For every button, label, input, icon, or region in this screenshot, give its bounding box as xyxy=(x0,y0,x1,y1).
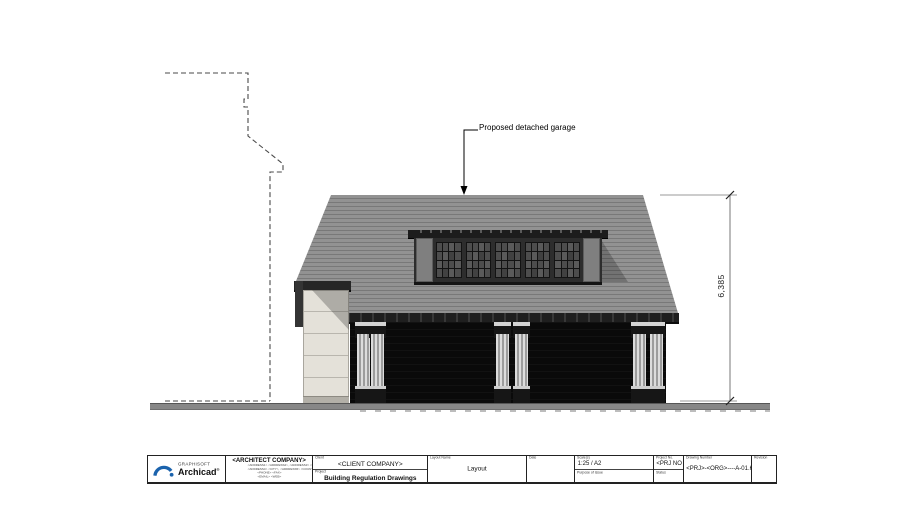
date-cell: Date xyxy=(527,456,575,482)
window-pane xyxy=(467,252,472,260)
window-pane xyxy=(515,243,520,251)
window-pane xyxy=(574,261,579,269)
dormer-window-band xyxy=(414,238,602,285)
dormer-windows xyxy=(436,242,580,278)
left-wall-return xyxy=(295,281,303,327)
window-pane xyxy=(479,243,484,251)
window-pane xyxy=(526,252,531,260)
window-pane xyxy=(467,243,472,251)
client-label: Client xyxy=(315,456,324,459)
window-pane xyxy=(568,269,573,277)
revision-label: Revision xyxy=(754,456,767,459)
dimension-tick-top xyxy=(726,191,734,199)
window-pane xyxy=(485,252,490,260)
window-pane xyxy=(496,252,501,260)
layout-name-cell: Layout Name Layout xyxy=(428,456,527,482)
window-pane xyxy=(526,269,531,277)
leader-arrow-icon xyxy=(461,186,468,195)
window-pane xyxy=(532,252,537,260)
window-pane xyxy=(544,252,549,260)
window-pane xyxy=(562,252,567,260)
scale-value: 1:25 / A2 xyxy=(578,461,602,467)
window-pane xyxy=(473,243,478,251)
project-label: Project xyxy=(315,470,326,473)
window-pane xyxy=(502,261,507,269)
window-pane xyxy=(479,261,484,269)
window-pane xyxy=(502,269,507,277)
existing-building-outline xyxy=(165,73,283,401)
window-pane xyxy=(443,261,448,269)
window-pane xyxy=(508,269,513,277)
window-pane xyxy=(515,261,520,269)
window-pane xyxy=(555,261,560,269)
window-pane xyxy=(555,243,560,251)
architect-contact-lines: <ADDRESS1> <ADDRESS2>, <ADDRESS3> <ZIP>,… xyxy=(247,464,290,479)
drawing-number-value: <PRJ>-<ORG>----A-01.6 xyxy=(686,466,752,472)
garage-column xyxy=(650,322,663,403)
window-pane xyxy=(538,243,543,251)
window-pane xyxy=(473,261,478,269)
graphisoft-arc-icon xyxy=(153,459,174,479)
window-pane xyxy=(455,269,460,277)
window-pane xyxy=(473,252,478,260)
window-pane xyxy=(544,243,549,251)
window-pane xyxy=(568,261,573,269)
logo-cell: GRAPHISOFT Archicad® xyxy=(148,456,226,482)
client-company: <CLIENT COMPANY> xyxy=(313,461,427,468)
garage-column xyxy=(371,322,384,403)
window-pane xyxy=(455,252,460,260)
window-pane xyxy=(443,252,448,260)
layout-name-label: Layout Name xyxy=(430,456,451,459)
window-pane xyxy=(502,252,507,260)
window-pane xyxy=(449,261,454,269)
dimension-value: 6,385 xyxy=(716,263,726,309)
window-pane xyxy=(449,243,454,251)
window-pane xyxy=(555,269,560,277)
project-no-label: Project No. xyxy=(656,456,673,459)
window-pane xyxy=(485,269,490,277)
dormer-cheek-left xyxy=(416,238,433,282)
window-pane xyxy=(574,243,579,251)
purpose-of-issue-label: Purpose of issue xyxy=(577,471,603,474)
window-pane xyxy=(515,252,520,260)
window-pane xyxy=(568,252,573,260)
dormer-window-unit xyxy=(466,242,492,278)
annotation-label: Proposed detached garage xyxy=(479,123,576,132)
garage-column xyxy=(515,322,528,403)
wall-plinth xyxy=(303,396,349,403)
window-pane xyxy=(496,269,501,277)
window-pane xyxy=(479,269,484,277)
window-pane xyxy=(479,252,484,260)
drawing-number-label: Drawing Number xyxy=(686,456,712,459)
cell-divider xyxy=(654,469,683,470)
status-label: Status xyxy=(656,471,666,474)
window-pane xyxy=(538,261,543,269)
window-pane xyxy=(526,261,531,269)
elevation-drawing: Proposed detached garage 6,385 xyxy=(0,0,923,516)
logo-brand: GRAPHISOFT xyxy=(178,463,210,468)
window-pane xyxy=(544,269,549,277)
window-pane xyxy=(443,243,448,251)
window-pane xyxy=(508,252,513,260)
architect-cell: <ARCHITECT COMPANY> <ADDRESS1> <ADDRESS2… xyxy=(226,456,314,482)
title-block: GRAPHISOFT Archicad® <ARCHITECT COMPANY>… xyxy=(147,455,777,484)
window-pane xyxy=(508,243,513,251)
ground-hatch xyxy=(360,410,770,412)
project-no-cell: Project No. <PRJ NO Status xyxy=(654,456,684,482)
window-pane xyxy=(437,261,442,269)
window-pane xyxy=(526,243,531,251)
window-pane xyxy=(574,252,579,260)
dormer-window-unit xyxy=(495,242,521,278)
client-project-cell: Client <CLIENT COMPANY> Project Building… xyxy=(313,456,428,482)
window-pane xyxy=(532,269,537,277)
window-pane xyxy=(443,269,448,277)
window-pane xyxy=(437,252,442,260)
window-pane xyxy=(467,269,472,277)
window-pane xyxy=(455,261,460,269)
window-pane xyxy=(496,243,501,251)
window-pane xyxy=(532,261,537,269)
dormer-cheek-right xyxy=(583,238,600,282)
garage-column xyxy=(633,322,646,403)
window-pane xyxy=(449,269,454,277)
dormer-window-unit xyxy=(525,242,551,278)
drawing-number-cell: Drawing Number <PRJ>-<ORG>----A-01.6 xyxy=(684,456,752,482)
annotation-leader xyxy=(464,130,478,187)
scale-cell: Scale(s) 1:25 / A2 Purpose of issue xyxy=(575,456,655,482)
window-pane xyxy=(496,261,501,269)
logo-product: Archicad® xyxy=(178,468,221,477)
revision-cell: Revision xyxy=(752,456,776,482)
garage-column xyxy=(496,322,509,403)
window-pane xyxy=(562,269,567,277)
window-pane xyxy=(467,261,472,269)
cell-divider xyxy=(575,469,654,470)
window-pane xyxy=(538,269,543,277)
side-wall xyxy=(303,290,349,403)
scale-label: Scale(s) xyxy=(577,456,590,459)
window-pane xyxy=(562,243,567,251)
window-pane xyxy=(473,269,478,277)
window-pane xyxy=(485,243,490,251)
window-pane xyxy=(515,269,520,277)
window-pane xyxy=(568,243,573,251)
window-pane xyxy=(538,252,543,260)
roof-shadow-on-wall xyxy=(303,290,349,335)
window-pane xyxy=(562,261,567,269)
window-pane xyxy=(544,261,549,269)
window-pane xyxy=(485,261,490,269)
window-pane xyxy=(555,252,560,260)
project-no-value: <PRJ NO xyxy=(656,461,682,467)
window-pane xyxy=(455,243,460,251)
window-pane xyxy=(437,269,442,277)
window-pane xyxy=(574,269,579,277)
window-pane xyxy=(449,252,454,260)
layout-name: Layout xyxy=(428,466,526,473)
ground-line xyxy=(150,403,770,410)
window-pane xyxy=(508,261,513,269)
window-pane xyxy=(532,243,537,251)
window-pane xyxy=(502,243,507,251)
date-label: Date xyxy=(529,456,536,459)
window-pane xyxy=(437,243,442,251)
dormer-window-unit xyxy=(554,242,580,278)
cell-divider xyxy=(313,469,427,470)
project-title: Building Regulation Drawings xyxy=(313,475,427,482)
dormer-window-unit xyxy=(436,242,462,278)
